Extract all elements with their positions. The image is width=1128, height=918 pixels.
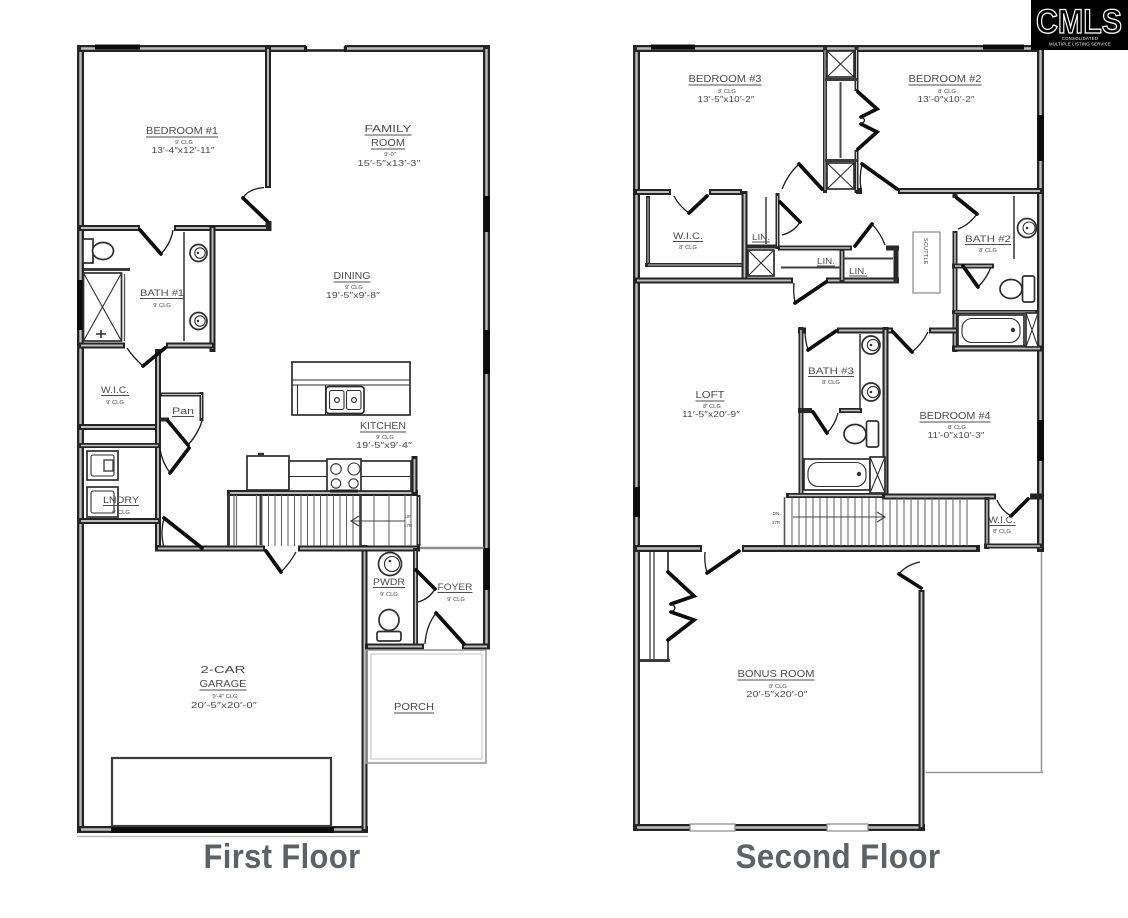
svg-text:BATH #2: BATH #2 (965, 234, 1011, 244)
svg-text:DINING: DINING (334, 270, 371, 282)
svg-text:SCUTTLE: SCUTTLE (922, 238, 928, 265)
svg-text:LIN.: LIN. (752, 233, 770, 242)
svg-text:13′-5″x10′-2″: 13′-5″x10′-2″ (698, 94, 755, 104)
svg-text:13′-4″x12′-11″: 13′-4″x12′-11″ (152, 145, 215, 155)
svg-text:LOFT: LOFT (696, 389, 726, 401)
svg-text:BONUS ROOM: BONUS ROOM (738, 668, 815, 680)
svg-text:20′-5″x20′-0″: 20′-5″x20′-0″ (747, 689, 808, 699)
svg-text:BEDROOM #2: BEDROOM #2 (909, 73, 982, 85)
svg-text:KITCHEN: KITCHEN (360, 420, 406, 432)
svg-text:PORCH: PORCH (394, 701, 434, 713)
svg-text:MULTIPLE LISTING SERVICE: MULTIPLE LISTING SERVICE (1049, 42, 1111, 47)
svg-text:Pan: Pan (172, 406, 194, 416)
svg-text:GARAGE: GARAGE (200, 678, 247, 690)
svg-text:8′ CLG: 8′ CLG (822, 380, 840, 386)
svg-text:LIN.: LIN. (849, 267, 867, 276)
svg-text:LIN.: LIN. (817, 257, 835, 266)
svg-text:DN: DN (773, 511, 780, 516)
svg-text:BATH #1: BATH #1 (140, 288, 184, 298)
svg-text:17R: 17R (772, 520, 781, 525)
svg-text:11′-5″x20′-9″: 11′-5″x20′-9″ (682, 409, 740, 419)
svg-text:8′ CLG: 8′ CLG (993, 529, 1011, 535)
svg-text:2-CAR: 2-CAR (201, 664, 247, 676)
svg-text:First Floor: First Floor (204, 838, 361, 876)
svg-text:9′ CLG: 9′ CLG (153, 303, 171, 309)
svg-text:15′-5″x13′-3″: 15′-5″x13′-3″ (358, 158, 421, 168)
svg-text:PWDR: PWDR (373, 577, 406, 587)
svg-text:8′ CLG: 8′ CLG (979, 248, 997, 254)
svg-text:LNDRY: LNDRY (103, 495, 139, 505)
svg-text:9′ CLG: 9′ CLG (380, 592, 398, 598)
svg-text:9′ CLG: 9′ CLG (447, 597, 465, 603)
svg-text:20′-5″x20′-0″: 20′-5″x20′-0″ (191, 700, 257, 710)
svg-text:ROOM: ROOM (371, 137, 405, 149)
svg-text:19′-5″x9′-4″: 19′-5″x9′-4″ (356, 440, 412, 450)
svg-text:11′-0″x10′-3″: 11′-0″x10′-3″ (928, 430, 985, 440)
svg-text:BEDROOM #4: BEDROOM #4 (920, 410, 991, 422)
svg-text:17R: 17R (404, 523, 413, 528)
svg-text:UP: UP (405, 514, 411, 519)
svg-text:CONSOLIDATED: CONSOLIDATED (1062, 36, 1098, 41)
svg-text:BEDROOM #3: BEDROOM #3 (689, 73, 762, 85)
svg-text:BATH #3: BATH #3 (808, 366, 854, 376)
svg-text:8′ CLG: 8′ CLG (679, 245, 697, 251)
svg-text:Second Floor: Second Floor (736, 838, 941, 876)
svg-text:FAMILY: FAMILY (365, 123, 412, 135)
svg-text:W.I.C.: W.I.C. (673, 231, 703, 241)
svg-text:BEDROOM #1: BEDROOM #1 (146, 125, 218, 137)
svg-text:FOYER: FOYER (438, 582, 474, 592)
svg-text:9′ CLG: 9′ CLG (106, 400, 124, 406)
svg-text:W.I.C.: W.I.C. (989, 515, 1016, 525)
svg-text:9′ CLG: 9′ CLG (112, 510, 130, 516)
svg-text:13′-0″x10′-2″: 13′-0″x10′-2″ (918, 94, 975, 104)
svg-text:19′-5″x9′-8″: 19′-5″x9′-8″ (326, 290, 380, 300)
svg-text:W.I.C.: W.I.C. (101, 385, 129, 395)
